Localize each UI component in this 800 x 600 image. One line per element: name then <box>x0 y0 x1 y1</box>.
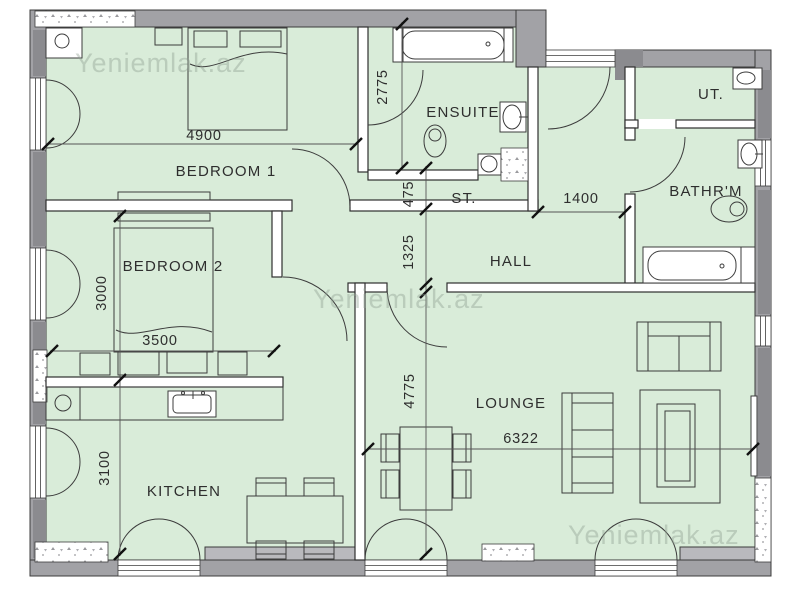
radiator <box>751 396 757 476</box>
room-label-bathroom: BATHR'M <box>669 183 742 200</box>
window-left-bedroom1 <box>30 78 46 150</box>
dim-lounge-width: 6322 <box>503 431 538 447</box>
entrance-threshold <box>546 50 615 67</box>
french-door-bottom-lounge-right <box>595 560 677 576</box>
dim-bedroom2-length: 3000 <box>94 275 110 310</box>
room-label-bedroom1: BEDROOM 1 <box>176 163 277 180</box>
utility-door-opening <box>638 119 676 129</box>
dim-hall-length: 1325 <box>401 234 417 269</box>
french-door-bottom-kitchen <box>118 560 200 576</box>
room-label-ensuite: ENSUITE <box>426 104 499 121</box>
dim-lounge-length: 4775 <box>402 373 418 408</box>
bathroom-bath <box>643 247 755 283</box>
room-label-lounge: LOUNGE <box>476 395 547 412</box>
dim-storage-depth: 475 <box>401 181 417 208</box>
watermark-text: Yeniemlak.az <box>75 48 247 78</box>
dim-kitchen-length: 3100 <box>97 450 113 485</box>
dim-ensuite-length: 2775 <box>375 69 391 104</box>
watermark-text: Yeniemlak.az <box>568 520 740 550</box>
dim-bedroom2-width: 3500 <box>142 333 177 349</box>
kitchen-table <box>247 496 343 543</box>
window-right-lounge <box>755 316 771 346</box>
watermark-text: Yeniemlak.az <box>313 284 485 314</box>
ensuite-bath <box>393 28 513 62</box>
room-label-kitchen: KITCHEN <box>147 483 221 500</box>
room-label-storage: ST. <box>451 190 476 207</box>
floor-plan-page: Yeniemlak.az Yeniemlak.az Yeniemlak.az B… <box>0 0 800 600</box>
dim-bedroom1-width: 4900 <box>186 128 221 144</box>
room-label-hall: HALL <box>490 253 532 270</box>
window-left-bedroom2 <box>30 248 46 320</box>
utility-fixtures <box>733 68 762 89</box>
dim-hall-width: 1400 <box>563 191 598 207</box>
floor-plan: Yeniemlak.az Yeniemlak.az Yeniemlak.az B… <box>0 0 800 600</box>
window-left-kitchen <box>30 426 46 498</box>
french-door-bottom-lounge-left <box>365 560 447 576</box>
room-label-utility: UT. <box>698 86 724 103</box>
room-label-bedroom2: BEDROOM 2 <box>123 258 224 275</box>
